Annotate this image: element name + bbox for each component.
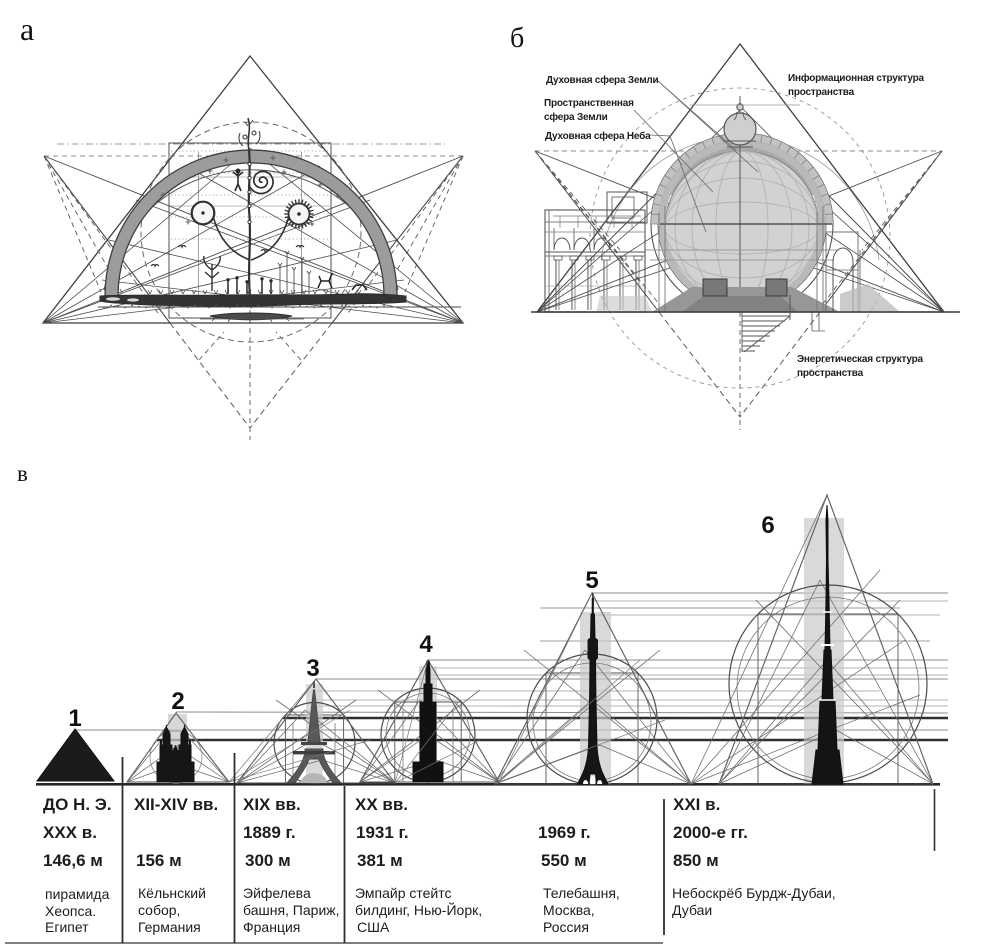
svg-text:4: 4: [419, 631, 433, 658]
svg-text:XIX вв.: XIX вв.: [243, 795, 301, 814]
svg-text:156 м: 156 м: [136, 851, 182, 870]
svg-text:1931 г.: 1931 г.: [356, 823, 409, 842]
svg-text:XX вв.: XX вв.: [355, 795, 408, 814]
svg-text:Германия: Германия: [138, 919, 201, 935]
svg-text:Телебашня,: Телебашня,: [543, 885, 620, 901]
svg-text:381 м: 381 м: [357, 851, 403, 870]
svg-text:башня, Париж,: башня, Париж,: [243, 902, 340, 918]
svg-text:собор,: собор,: [138, 902, 180, 918]
svg-text:3: 3: [306, 655, 319, 682]
svg-text:Россия: Россия: [543, 919, 589, 935]
svg-text:XXI в.: XXI в.: [673, 795, 720, 814]
svg-text:Духовная сфера Земли: Духовная сфера Земли: [546, 74, 659, 86]
svg-text:Небоскрёб Бурдж-Дубаи,: Небоскрёб Бурдж-Дубаи,: [672, 885, 836, 901]
svg-text:a: a: [20, 11, 34, 47]
svg-text:билдинг, Нью-Йорк,: билдинг, Нью-Йорк,: [355, 901, 482, 918]
svg-text:Франция: Франция: [243, 919, 300, 935]
svg-text:6: 6: [761, 512, 774, 539]
svg-text:300 м: 300 м: [245, 851, 291, 870]
svg-text:850 м: 850 м: [673, 851, 719, 870]
svg-text:Москва,: Москва,: [543, 902, 595, 918]
svg-text:2: 2: [171, 688, 184, 715]
svg-text:2000-е гг.: 2000-е гг.: [673, 823, 748, 842]
svg-text:1: 1: [68, 705, 81, 732]
svg-text:XXX в.: XXX в.: [43, 823, 97, 842]
svg-text:Дубаи: Дубаи: [672, 902, 712, 918]
svg-text:1969 г.: 1969 г.: [538, 823, 591, 842]
svg-text:сфера Земли: сфера Земли: [544, 111, 608, 123]
svg-text:Кёльнский: Кёльнский: [138, 885, 206, 901]
svg-text:Эмпайр стейтс: Эмпайр стейтс: [355, 885, 452, 901]
svg-text:XII-XIV вв.: XII-XIV вв.: [134, 795, 218, 814]
svg-text:США: США: [357, 919, 390, 935]
svg-text:б: б: [510, 23, 524, 54]
svg-text:1889 г.: 1889 г.: [243, 823, 296, 842]
svg-text:Энергетическая структура: Энергетическая структура: [797, 354, 924, 365]
svg-text:пирамида: пирамида: [45, 886, 110, 902]
svg-text:ДО Н. Э.: ДО Н. Э.: [43, 795, 112, 814]
svg-text:Пространственная: Пространственная: [544, 98, 634, 109]
svg-text:Духовная сфера Неба: Духовная сфера Неба: [545, 130, 651, 142]
svg-text:Эйфелева: Эйфелева: [243, 885, 311, 901]
svg-text:Информационная структура: Информационная структура: [788, 72, 925, 84]
svg-text:Египет: Египет: [45, 919, 89, 935]
svg-text:пространства: пространства: [797, 368, 864, 379]
svg-text:550 м: 550 м: [541, 851, 587, 870]
svg-text:Хеопса.: Хеопса.: [45, 903, 96, 919]
svg-text:в: в: [17, 461, 28, 486]
svg-text:146,6 м: 146,6 м: [43, 851, 103, 870]
svg-text:пространства: пространства: [788, 87, 855, 98]
svg-text:5: 5: [585, 567, 598, 594]
